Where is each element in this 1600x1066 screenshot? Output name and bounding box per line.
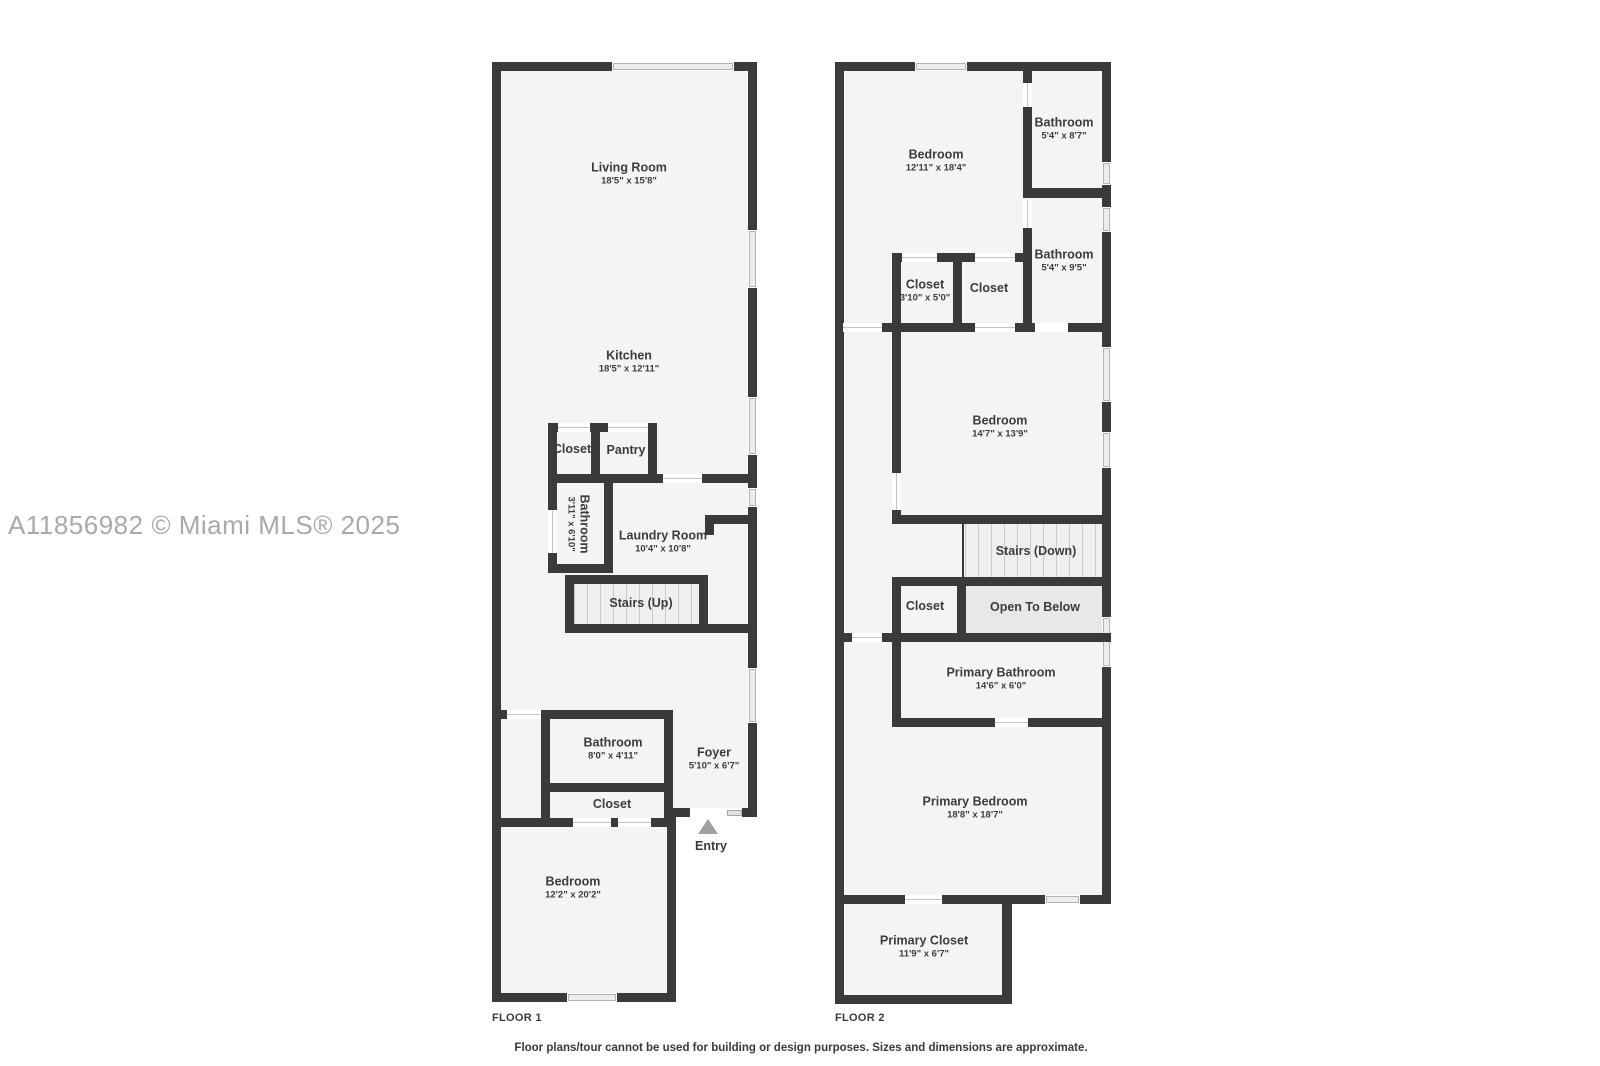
room-label-closet-lower: Closet <box>593 797 631 811</box>
room-label-bedroom1: Bedroom 12'11" x 18'4" <box>906 148 967 175</box>
door-opening <box>548 510 557 553</box>
room-label-primary-bedroom: Primary Bedroom 18'8" x 18'7" <box>923 795 1028 822</box>
window <box>1045 895 1080 904</box>
wall <box>492 62 612 71</box>
room-label-bedroom2: Bedroom 14'7" x 13'9" <box>972 414 1028 441</box>
wall <box>1028 718 1111 727</box>
wall <box>1023 71 1032 83</box>
window <box>1102 617 1111 667</box>
wall <box>565 575 708 584</box>
wall <box>967 62 1111 71</box>
window <box>1102 347 1111 402</box>
disclaimer-text: Floor plans/tour cannot be used for buil… <box>514 1042 1087 1054</box>
wall <box>604 483 613 573</box>
wall <box>1015 323 1035 332</box>
wall <box>892 642 901 727</box>
room-label-bathroom2: Bathroom 5'4" x 9'5" <box>1034 248 1093 275</box>
window <box>612 62 734 71</box>
window <box>1102 162 1111 185</box>
floor2-tag: FLOOR 2 <box>835 1012 885 1024</box>
door-opening <box>663 474 702 483</box>
room-label-stairs-up: Stairs (Up) <box>609 596 672 610</box>
wall <box>565 624 757 633</box>
room-label-closet: Closet <box>553 442 591 456</box>
door-opening <box>618 818 651 827</box>
wall <box>617 993 676 1002</box>
wall <box>541 710 550 827</box>
wall <box>492 710 507 719</box>
wall <box>835 895 905 904</box>
window <box>915 62 967 71</box>
room-label-bedroom-f1: Bedroom 12'2" x 20'2" <box>545 875 601 902</box>
door-opening <box>573 818 611 827</box>
wall <box>541 783 673 792</box>
window <box>748 397 757 455</box>
wall <box>835 995 1012 1004</box>
wall <box>882 633 1111 642</box>
wall <box>1023 107 1032 198</box>
wall <box>1002 903 1012 995</box>
wall <box>1080 895 1111 904</box>
wall <box>667 808 676 1002</box>
door-opening <box>1035 323 1068 332</box>
door-opening <box>558 423 590 432</box>
room-label-bathroom-lower: Bathroom 8'0" x 4'11" <box>583 736 642 763</box>
door-opening <box>905 895 942 904</box>
door-opening <box>608 423 648 432</box>
window <box>748 488 757 507</box>
room-label-primary-closet: Primary Closet 11'9" x 6'7" <box>880 934 968 961</box>
wall <box>892 718 995 727</box>
wall <box>548 474 663 483</box>
wall <box>492 818 573 827</box>
wall <box>492 993 567 1002</box>
wall <box>1015 253 1023 262</box>
wall <box>892 577 1111 586</box>
room-label-laundry: Laundry Room 10'4" x 10'8" <box>619 529 707 556</box>
entry-label: Entry <box>695 839 727 853</box>
room-label-open-to-below: Open To Below <box>990 600 1080 614</box>
wall <box>835 62 844 1004</box>
stairs-edge-line <box>962 524 964 577</box>
door-opening <box>843 323 882 332</box>
door-opening <box>507 710 541 719</box>
wall <box>611 818 618 827</box>
door-opening <box>1023 200 1032 228</box>
room-label-pantry: Pantry <box>607 443 646 457</box>
room-label-closet2: Closet <box>970 281 1008 295</box>
wall <box>541 710 673 719</box>
room-label-bathroom-mid: Bathroom 3'11" x 6'10" <box>565 494 592 553</box>
mls-watermark: A11856982 © Miami MLS® 2025 <box>8 510 400 541</box>
room-label-bathroom1: Bathroom 5'4" x 8'7" <box>1034 116 1093 143</box>
floor1-bedroom-area <box>501 817 667 1002</box>
wall <box>742 808 757 817</box>
window <box>748 230 757 288</box>
wall <box>892 515 1102 524</box>
wall <box>942 895 1045 904</box>
wall <box>548 564 613 573</box>
wall <box>548 483 557 510</box>
wall <box>702 474 757 483</box>
door-opening <box>902 253 937 262</box>
wall <box>1068 323 1111 332</box>
room-label-living-room: Living Room 18'5" x 15'8" <box>591 161 667 188</box>
door-opening <box>892 473 901 510</box>
door-opening <box>995 718 1028 727</box>
door-opening <box>852 633 882 642</box>
wall <box>937 253 975 262</box>
wall <box>835 323 843 332</box>
entry-door-leaf <box>727 810 742 816</box>
wall <box>1023 188 1111 198</box>
window <box>1102 432 1111 468</box>
wall <box>492 62 501 1002</box>
window <box>567 993 617 1002</box>
room-label-closet3: Closet <box>906 599 944 613</box>
room-label-foyer: Foyer 5'10" x 6'7" <box>689 746 740 773</box>
wall <box>892 332 901 473</box>
wall <box>667 808 690 817</box>
door-opening <box>1023 83 1032 107</box>
room-label-kitchen: Kitchen 18'5" x 12'11" <box>599 349 660 376</box>
entry-arrow-icon <box>698 819 718 834</box>
floor1-tag: FLOOR 1 <box>492 1012 542 1024</box>
door-opening <box>975 253 1015 262</box>
door-opening <box>975 323 1015 332</box>
wall <box>953 262 962 332</box>
wall <box>835 633 852 642</box>
wall <box>957 586 966 633</box>
room-label-stairs-down: Stairs (Down) <box>996 544 1077 558</box>
window <box>1102 207 1111 232</box>
room-label-closet1: Closet 3'10" x 5'0" <box>900 278 951 305</box>
wall <box>882 323 975 332</box>
floorplan-page: A11856982 © Miami MLS® 2025 <box>0 0 1600 1066</box>
window <box>748 668 757 723</box>
room-label-primary-bathroom: Primary Bathroom 14'6" x 6'0" <box>946 666 1055 693</box>
wall <box>1023 228 1032 332</box>
wall <box>835 62 915 71</box>
